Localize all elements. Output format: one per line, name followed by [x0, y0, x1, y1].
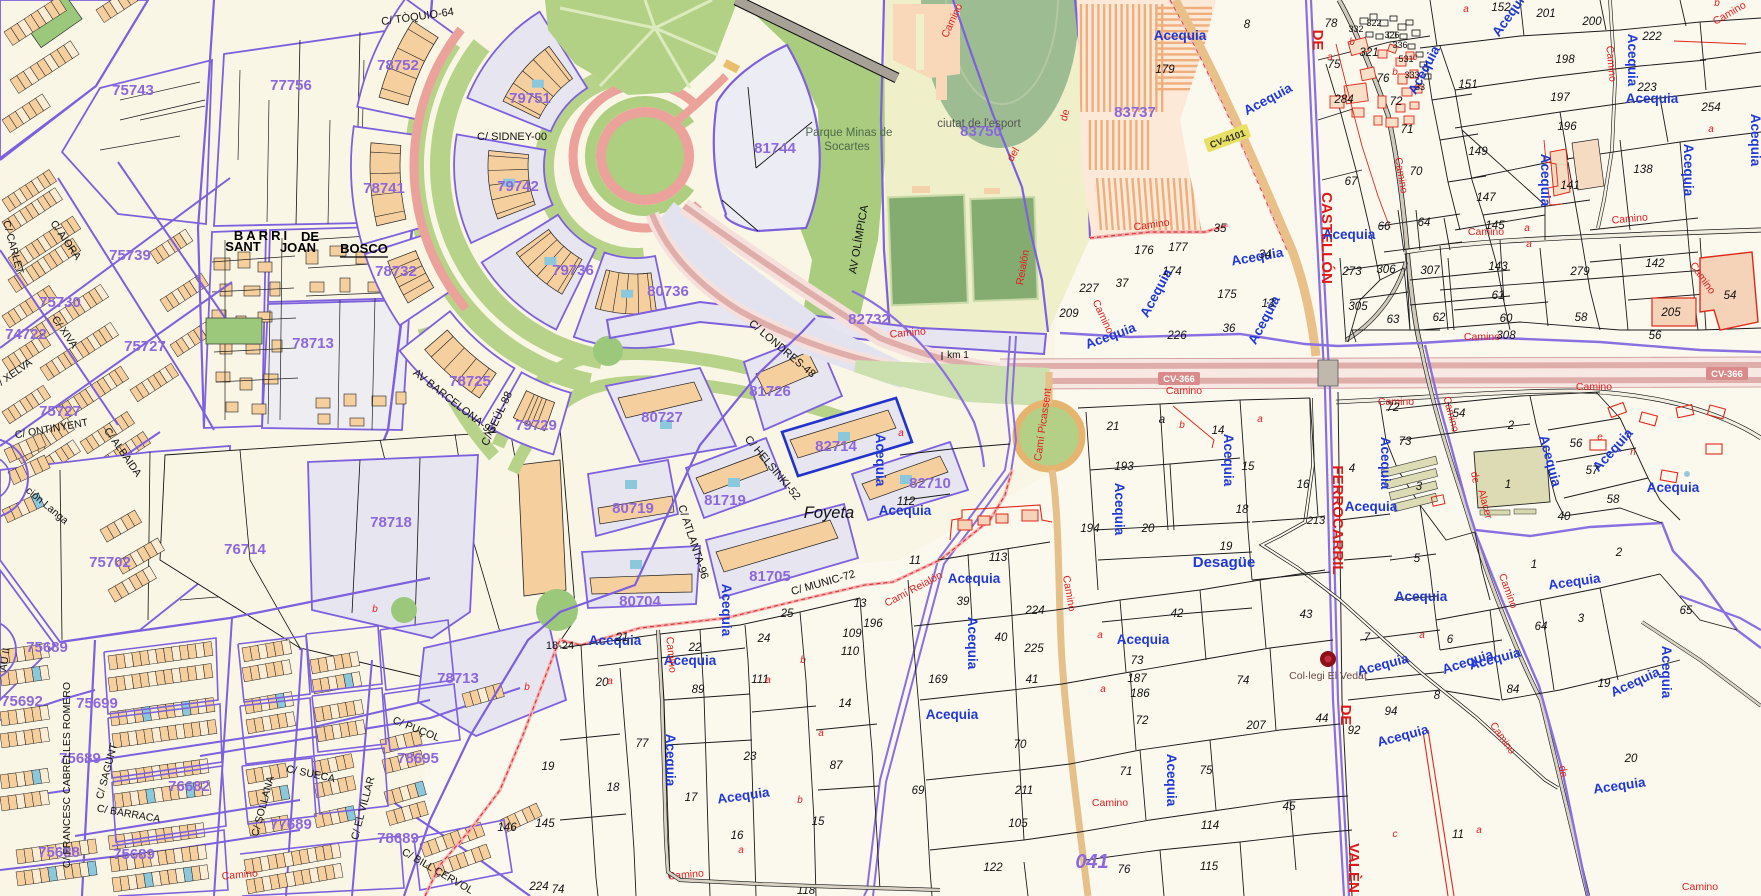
svg-text:21: 21	[615, 632, 629, 644]
svg-text:322: 322	[1366, 18, 1381, 28]
svg-text:54: 54	[1724, 290, 1737, 302]
svg-text:74: 74	[1237, 675, 1250, 687]
svg-text:b: b	[1179, 420, 1185, 431]
svg-text:a: a	[898, 428, 904, 439]
svg-text:75: 75	[1200, 765, 1213, 777]
svg-text:336: 336	[1392, 40, 1407, 50]
svg-text:209: 209	[1058, 308, 1079, 320]
svg-text:110: 110	[841, 646, 860, 658]
svg-text:149: 149	[1468, 146, 1488, 158]
svg-text:64: 64	[1418, 217, 1431, 229]
svg-text:SANT: SANT	[225, 239, 260, 254]
svg-text:211: 211	[1014, 785, 1033, 797]
svg-text:58: 58	[1607, 494, 1620, 506]
svg-text:041: 041	[1075, 851, 1108, 873]
svg-text:19: 19	[542, 761, 555, 773]
svg-text:308: 308	[1496, 330, 1516, 342]
svg-text:213: 213	[1306, 515, 1326, 527]
svg-text:a: a	[607, 676, 613, 687]
svg-text:109: 109	[842, 628, 862, 640]
svg-text:8: 8	[1434, 690, 1441, 702]
svg-text:273: 273	[1341, 266, 1362, 278]
svg-text:Camino: Camino	[1464, 331, 1500, 343]
svg-text:11: 11	[909, 555, 921, 567]
svg-text:3: 3	[1578, 613, 1585, 625]
svg-text:78713: 78713	[292, 335, 334, 352]
svg-text:76: 76	[1118, 864, 1131, 876]
svg-text:75739: 75739	[109, 247, 151, 264]
svg-text:196: 196	[863, 618, 883, 630]
svg-text:a: a	[1476, 825, 1482, 836]
svg-text:b: b	[524, 682, 530, 693]
svg-text:115: 115	[1200, 861, 1219, 873]
svg-text:205: 205	[1660, 307, 1681, 319]
svg-text:306: 306	[1376, 264, 1396, 276]
svg-text:23: 23	[743, 751, 757, 763]
svg-text:57: 57	[1586, 465, 1599, 477]
svg-text:326: 326	[1384, 30, 1399, 40]
svg-text:15: 15	[1242, 461, 1255, 473]
svg-text:c: c	[1393, 829, 1398, 840]
svg-text:65: 65	[1680, 605, 1693, 617]
svg-text:CV-366: CV-366	[1163, 374, 1195, 385]
svg-text:Acequia: Acequia	[1681, 144, 1696, 197]
svg-text:75688: 75688	[38, 844, 80, 861]
svg-text:Acequia: Acequia	[1659, 646, 1674, 699]
svg-text:92: 92	[1348, 725, 1361, 737]
svg-text:79751: 79751	[509, 90, 551, 107]
svg-text:222: 222	[1641, 31, 1662, 43]
svg-text:201: 201	[1535, 8, 1555, 20]
svg-text:141: 141	[1560, 180, 1579, 192]
svg-text:de: de	[1468, 471, 1482, 485]
svg-text:17: 17	[685, 792, 698, 804]
svg-text:122: 122	[983, 862, 1003, 874]
svg-text:Socartes: Socartes	[824, 141, 870, 153]
svg-text:186: 186	[1130, 688, 1150, 700]
svg-text:a: a	[1524, 223, 1530, 234]
svg-text:147: 147	[1476, 192, 1496, 204]
svg-text:b: b	[1349, 37, 1355, 48]
svg-text:Desagüe: Desagüe	[1193, 554, 1256, 571]
svg-text:63: 63	[1387, 314, 1400, 326]
svg-text:79729: 79729	[515, 417, 557, 434]
svg-text:305: 305	[1348, 301, 1368, 313]
svg-text:82710: 82710	[909, 475, 951, 492]
svg-text:a: a	[1100, 684, 1106, 695]
svg-text:531: 531	[1398, 54, 1413, 64]
svg-text:C/ SIDNEY-00: C/ SIDNEY-00	[477, 131, 547, 143]
svg-text:Col·legi El Vedat: Col·legi El Vedat	[1289, 670, 1367, 682]
svg-text:71: 71	[1401, 124, 1414, 136]
svg-text:a: a	[1097, 630, 1103, 641]
svg-text:112: 112	[897, 496, 916, 508]
svg-text:75730: 75730	[39, 294, 81, 311]
svg-text:80704: 80704	[619, 593, 661, 610]
svg-text:74722: 74722	[5, 326, 47, 343]
svg-text:78695: 78695	[397, 750, 439, 767]
svg-text:18: 18	[607, 782, 620, 794]
svg-text:FERROCARRIL: FERROCARRIL	[1329, 465, 1346, 574]
svg-text:58: 58	[1575, 312, 1588, 324]
svg-text:225: 225	[1023, 643, 1044, 655]
svg-text:75689: 75689	[113, 846, 155, 863]
svg-text:105: 105	[1008, 818, 1028, 830]
svg-text:177: 177	[1168, 242, 1188, 254]
svg-text:2: 2	[1507, 420, 1515, 432]
svg-text:Camino: Camino	[1166, 385, 1202, 397]
svg-text:64: 64	[1535, 621, 1548, 633]
svg-text:227: 227	[1078, 283, 1099, 295]
svg-text:73: 73	[1399, 436, 1412, 448]
svg-text:19: 19	[1220, 541, 1233, 553]
svg-text:40: 40	[1558, 511, 1571, 523]
svg-text:333: 333	[1404, 70, 1419, 80]
svg-text:169: 169	[928, 674, 948, 686]
svg-text:145: 145	[535, 818, 555, 830]
svg-text:5: 5	[1414, 553, 1421, 565]
svg-text:20: 20	[1141, 523, 1155, 535]
svg-text:37: 37	[1116, 278, 1129, 290]
svg-text:66: 66	[1378, 221, 1391, 233]
svg-text:3: 3	[1416, 481, 1423, 493]
svg-text:41: 41	[1026, 674, 1039, 686]
svg-text:a: a	[765, 675, 771, 686]
svg-text:JOAN: JOAN	[280, 240, 316, 255]
svg-text:Acequia: Acequia	[1748, 114, 1761, 167]
svg-text:14: 14	[839, 698, 852, 710]
svg-text:34: 34	[1259, 249, 1272, 261]
svg-text:80727: 80727	[641, 409, 683, 426]
svg-text:75702: 75702	[89, 554, 131, 571]
svg-text:40: 40	[995, 632, 1008, 644]
svg-text:72: 72	[1136, 715, 1149, 727]
svg-text:193: 193	[1114, 461, 1134, 473]
svg-text:72: 72	[1390, 96, 1403, 108]
svg-text:61: 61	[1492, 290, 1505, 302]
svg-text:7: 7	[1364, 632, 1371, 644]
svg-text:75727: 75727	[124, 338, 166, 355]
svg-text:307: 307	[1420, 265, 1440, 277]
svg-text:143: 143	[1488, 261, 1508, 273]
svg-text:71: 71	[1120, 766, 1133, 778]
svg-text:194: 194	[1080, 523, 1099, 535]
svg-text:35: 35	[1214, 223, 1227, 235]
svg-text:33: 33	[1415, 82, 1425, 92]
svg-text:2: 2	[1615, 547, 1623, 559]
svg-text:44: 44	[1316, 713, 1329, 725]
svg-text:21: 21	[1106, 421, 1120, 433]
svg-text:224: 224	[528, 881, 548, 893]
svg-text:196: 196	[1557, 121, 1577, 133]
svg-text:de: de	[1556, 765, 1570, 779]
svg-text:223: 223	[1636, 82, 1657, 94]
svg-text:81705: 81705	[749, 568, 791, 585]
svg-text:a: a	[818, 728, 824, 739]
svg-text:77689: 77689	[270, 816, 312, 833]
svg-text:11: 11	[1452, 829, 1464, 841]
svg-text:a: a	[738, 845, 744, 856]
svg-text:84: 84	[1507, 684, 1520, 696]
svg-text:200: 200	[1581, 16, 1602, 28]
svg-text:Camino: Camino	[1576, 381, 1612, 393]
svg-text:22: 22	[688, 642, 702, 654]
svg-text:42: 42	[1171, 608, 1184, 620]
svg-text:b: b	[800, 655, 806, 666]
svg-text:146: 146	[497, 822, 517, 834]
svg-text:76: 76	[1377, 73, 1390, 85]
svg-text:79736: 79736	[552, 262, 594, 279]
svg-text:70: 70	[1014, 739, 1027, 751]
svg-text:56: 56	[1570, 438, 1583, 450]
svg-text:45: 45	[1283, 801, 1296, 813]
svg-text:82714: 82714	[815, 438, 857, 455]
svg-text:175: 175	[1217, 289, 1237, 301]
svg-text:142: 142	[1645, 258, 1665, 270]
svg-text:e: e	[1597, 432, 1603, 443]
svg-text:78741: 78741	[363, 180, 405, 197]
svg-text:207: 207	[1245, 720, 1266, 732]
svg-text:70: 70	[1410, 166, 1423, 178]
svg-text:b: b	[372, 604, 378, 615]
svg-text:78725: 78725	[449, 373, 491, 390]
svg-text:b: b	[1714, 0, 1720, 9]
svg-text:Acequia: Acequia	[948, 571, 1001, 586]
svg-text:19: 19	[1598, 678, 1611, 690]
svg-text:113: 113	[989, 552, 1008, 564]
svg-text:78: 78	[1325, 18, 1338, 30]
svg-text:87: 87	[830, 760, 843, 772]
svg-text:Acequia: Acequia	[1164, 754, 1179, 807]
svg-text:75689: 75689	[26, 639, 68, 656]
svg-text:18: 18	[1236, 504, 1249, 516]
svg-text:8: 8	[1244, 19, 1251, 31]
svg-text:279: 279	[1569, 266, 1590, 278]
svg-text:72: 72	[1387, 402, 1400, 414]
svg-text:69: 69	[912, 785, 925, 797]
svg-text:78718: 78718	[370, 514, 412, 531]
svg-text:138: 138	[1633, 164, 1653, 176]
svg-text:54: 54	[1453, 408, 1466, 420]
svg-text:332: 332	[1348, 24, 1363, 34]
svg-text:Camino: Camino	[1092, 797, 1128, 809]
svg-text:62: 62	[1433, 312, 1446, 324]
svg-text:36: 36	[1223, 323, 1236, 335]
svg-text:6: 6	[1447, 634, 1454, 646]
svg-text:n: n	[1630, 447, 1636, 458]
svg-text:a: a	[1463, 4, 1469, 15]
svg-text:a: a	[1419, 630, 1425, 641]
svg-text:60: 60	[1500, 313, 1513, 325]
svg-text:CV-366: CV-366	[1711, 369, 1743, 380]
svg-text:89: 89	[692, 684, 705, 696]
svg-text:Acequia: Acequia	[1323, 227, 1376, 242]
svg-text:114: 114	[1201, 820, 1219, 832]
svg-text:145: 145	[1485, 220, 1505, 232]
svg-text:197: 197	[1550, 92, 1570, 104]
svg-text:78752: 78752	[377, 57, 419, 74]
svg-text:78689: 78689	[377, 830, 419, 847]
svg-text:BOSCO: BOSCO	[340, 241, 388, 256]
svg-text:a: a	[1159, 414, 1165, 426]
svg-text:a: a	[1708, 124, 1714, 135]
svg-text:73: 73	[1131, 655, 1144, 667]
svg-text:74: 74	[552, 884, 565, 896]
svg-text:152: 152	[1491, 2, 1511, 14]
svg-text:94: 94	[1385, 706, 1398, 718]
svg-text:13: 13	[854, 598, 867, 610]
svg-text:Acequia: Acequia	[926, 707, 979, 722]
svg-text:78732: 78732	[375, 263, 417, 280]
svg-text:43: 43	[1300, 609, 1313, 621]
svg-text:km 1: km 1	[947, 350, 969, 361]
svg-text:224: 224	[1024, 605, 1044, 617]
svg-text:Acequia: Acequia	[1345, 499, 1398, 514]
svg-text:80719: 80719	[612, 500, 654, 517]
svg-text:Acequia: Acequia	[1221, 434, 1236, 487]
svg-text:a: a	[1257, 414, 1263, 425]
svg-text:174: 174	[1162, 266, 1181, 278]
svg-text:Acequia: Acequia	[719, 584, 734, 637]
svg-text:254: 254	[1700, 102, 1720, 114]
svg-text:a: a	[1526, 239, 1532, 250]
svg-text:Acequia: Acequia	[1647, 480, 1700, 495]
svg-text:75727: 75727	[39, 403, 81, 420]
svg-text:151: 151	[1458, 79, 1477, 91]
svg-text:16: 16	[731, 830, 744, 842]
svg-text:b: b	[1392, 67, 1398, 78]
svg-text:80736: 80736	[647, 283, 689, 300]
svg-text:79742: 79742	[497, 178, 539, 195]
svg-text:Foyeta: Foyeta	[804, 504, 854, 522]
svg-text:Camino: Camino	[1682, 881, 1718, 893]
svg-text:82732: 82732	[848, 311, 890, 328]
svg-text:18-24: 18-24	[546, 640, 574, 652]
svg-text:78713: 78713	[437, 670, 479, 687]
svg-text:Acequia: Acequia	[1625, 34, 1640, 87]
svg-text:75699: 75699	[76, 695, 118, 712]
svg-text:75692: 75692	[1, 693, 43, 710]
svg-text:83737: 83737	[1114, 104, 1156, 121]
svg-text:25: 25	[780, 608, 794, 620]
svg-text:Acequia: Acequia	[1395, 589, 1448, 604]
svg-text:1: 1	[1505, 479, 1511, 491]
svg-text:14: 14	[1212, 425, 1225, 437]
svg-text:198: 198	[1555, 54, 1575, 66]
svg-text:187: 187	[1127, 673, 1147, 685]
svg-text:16: 16	[1297, 479, 1310, 491]
svg-text:DE: DE	[1337, 705, 1354, 726]
svg-text:176: 176	[1134, 245, 1154, 257]
svg-text:Acequia: Acequia	[873, 434, 888, 487]
svg-text:76682: 76682	[168, 778, 210, 795]
svg-text:b: b	[797, 795, 803, 806]
svg-text:39: 39	[957, 596, 970, 608]
svg-text:20: 20	[1624, 753, 1638, 765]
svg-text:81726: 81726	[749, 383, 791, 400]
svg-text:77756: 77756	[270, 77, 312, 94]
svg-text:4: 4	[1349, 463, 1355, 475]
svg-text:Parque Minas de: Parque Minas de	[806, 127, 893, 139]
svg-text:13: 13	[1262, 298, 1275, 310]
svg-text:81719: 81719	[704, 492, 746, 509]
svg-text:77: 77	[636, 738, 649, 750]
svg-text:56: 56	[1649, 330, 1662, 342]
svg-text:226: 226	[1166, 330, 1187, 342]
svg-text:284: 284	[1333, 94, 1353, 106]
svg-text:76714: 76714	[224, 541, 266, 558]
svg-text:Acequia: Acequia	[1378, 437, 1393, 490]
svg-text:VALÈN: VALÈN	[1345, 843, 1362, 893]
svg-text:Acequia: Acequia	[1538, 154, 1553, 207]
svg-text:Acequia: Acequia	[1112, 483, 1127, 536]
svg-text:DE: DE	[1309, 30, 1326, 51]
svg-text:24: 24	[757, 633, 771, 645]
svg-text:67: 67	[1345, 176, 1358, 188]
svg-text:321: 321	[1359, 47, 1378, 59]
svg-text:C/ FRANCESC CABRELLES ROMERO: C/ FRANCESC CABRELLES ROMERO	[61, 682, 73, 868]
svg-text:15: 15	[812, 816, 825, 828]
svg-text:179: 179	[1155, 64, 1175, 76]
svg-text:Acequia: Acequia	[1154, 28, 1207, 43]
svg-text:75743: 75743	[112, 82, 154, 99]
svg-text:Acequia: Acequia	[1117, 632, 1170, 647]
svg-text:Acequia: Acequia	[965, 617, 980, 670]
svg-text:81744: 81744	[754, 140, 796, 157]
svg-text:a: a	[1327, 52, 1333, 63]
svg-text:ciutat de l'esport: ciutat de l'esport	[937, 118, 1021, 130]
svg-text:1: 1	[1531, 559, 1537, 571]
